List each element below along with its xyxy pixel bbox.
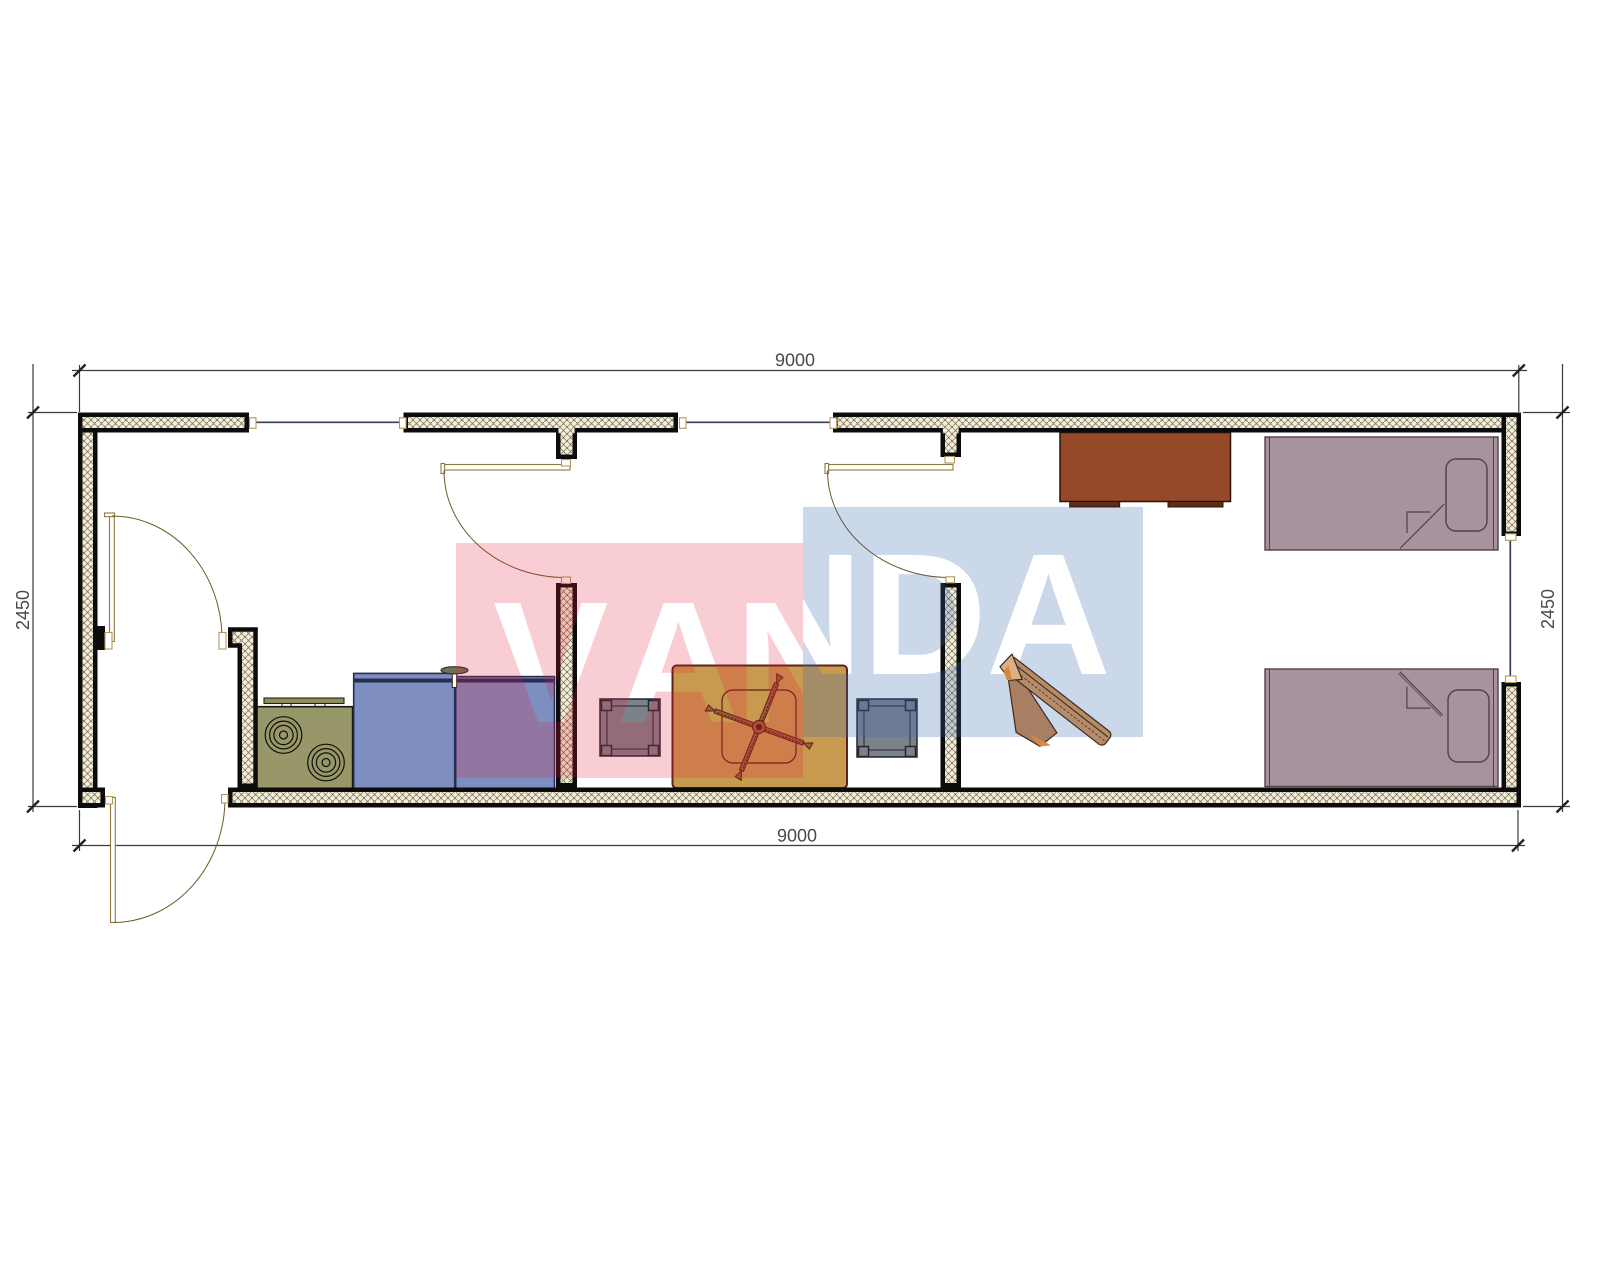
svg-text:2450: 2450 bbox=[13, 590, 33, 630]
svg-text:9000: 9000 bbox=[777, 825, 817, 845]
svg-text:9000: 9000 bbox=[775, 350, 815, 370]
svg-text:2450: 2450 bbox=[1538, 589, 1558, 629]
